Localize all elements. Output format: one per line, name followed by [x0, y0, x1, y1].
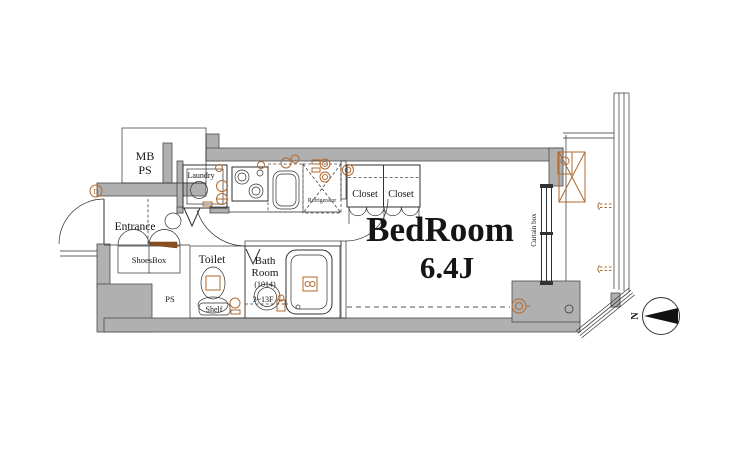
label-curtain-box: Curtain box [530, 213, 538, 247]
label-closet-left: Closet [352, 189, 378, 200]
room-toilet: Toilet Shelf [190, 246, 245, 318]
window-tick-mid [540, 232, 553, 235]
label-bedroom: BedRoom [366, 210, 514, 249]
laundry-door-fold-icon [184, 208, 200, 226]
stove-burner-2-inner [252, 187, 260, 195]
bath-top-wall [245, 241, 341, 246]
laundry-outlet-icon [217, 181, 228, 192]
bath-control-dot-1 [305, 282, 310, 287]
wall-left-lower [97, 244, 110, 288]
wall-bedroom-step [512, 281, 580, 322]
wall-bottom [104, 318, 580, 332]
wall-mbps-bottom [97, 183, 206, 196]
label-ps-bottom: PS [165, 294, 175, 304]
entrance-door-arc [59, 199, 104, 244]
hall-door-arc [197, 210, 245, 246]
bath-control-dot-2 [310, 282, 315, 287]
label-mb: MB [136, 149, 155, 163]
label-ps-top: PS [138, 163, 151, 177]
label-entrance: Entrance [115, 221, 156, 233]
toilet-outlet-icon [230, 298, 240, 308]
window-tick-top [540, 184, 553, 188]
balcony-diagonal-3 [580, 293, 633, 336]
balcony-diagonal-1 [576, 288, 629, 331]
kitchen: Refrigerator [229, 155, 341, 213]
label-toilet: Toilet [199, 254, 226, 266]
toilet-fixture-icon [201, 267, 225, 299]
wall-right-upper [549, 148, 563, 186]
door-marker-letter: D [93, 188, 98, 196]
label-north: N [630, 312, 641, 320]
partition-clip-1 [598, 203, 612, 210]
floor-plan-page: MB PS D Entrance ShoesBox PS Laundry [0, 0, 730, 470]
wall-laundry-left [177, 161, 183, 213]
laundry-vent-icon [216, 165, 223, 172]
label-bath-floors: 3~13F [253, 295, 274, 304]
balcony-diagonal-2 [578, 290, 631, 333]
stove-burner-2 [249, 184, 263, 198]
toilet-tag [231, 310, 240, 314]
room-bathroom: Bath Room (1014) 3~13F [245, 241, 341, 318]
label-shoesbox: ShoesBox [132, 255, 167, 265]
toilet-seat-square [206, 276, 220, 290]
wall-top [206, 148, 563, 161]
downlight-icon [165, 213, 181, 229]
window-tick-bottom [540, 281, 553, 285]
label-shelf: Shelf [206, 305, 223, 314]
fridge-outlet-2 [320, 172, 330, 182]
stove-burner-1-inner [238, 173, 246, 181]
bath-drain-dot [296, 305, 300, 309]
wall-mbps-divider [163, 143, 172, 183]
fridge-outlet-2-inner [323, 175, 328, 180]
label-bath-2: Room [252, 267, 279, 279]
floor-plan: MB PS D Entrance ShoesBox PS Laundry [0, 0, 730, 470]
stove-knob [257, 170, 263, 176]
basin-faucet-icon [277, 300, 285, 311]
label-bath-1: Bath [255, 255, 276, 267]
label-closet-right: Closet [388, 189, 414, 200]
closet-door-arc-1 [349, 207, 367, 216]
fridge-tag-2 [312, 168, 320, 172]
north-arrow-icon: N [630, 298, 680, 335]
bedroom-wall-lower [341, 241, 346, 318]
stove-burner-1 [235, 170, 249, 184]
balcony-diagonal-4 [582, 295, 635, 338]
kitchen-sink-inner [276, 174, 296, 206]
label-bedroom-size: 6.4J [420, 250, 474, 285]
label-laundry: Laundry [187, 171, 214, 180]
closet-outlet-icon [343, 165, 354, 176]
shoes-wedge-icon [150, 242, 177, 248]
wall-laundry-sill-left [177, 207, 183, 213]
label-refrigerator: Refrigerator [308, 197, 336, 204]
partition-clip-2 [598, 266, 612, 273]
